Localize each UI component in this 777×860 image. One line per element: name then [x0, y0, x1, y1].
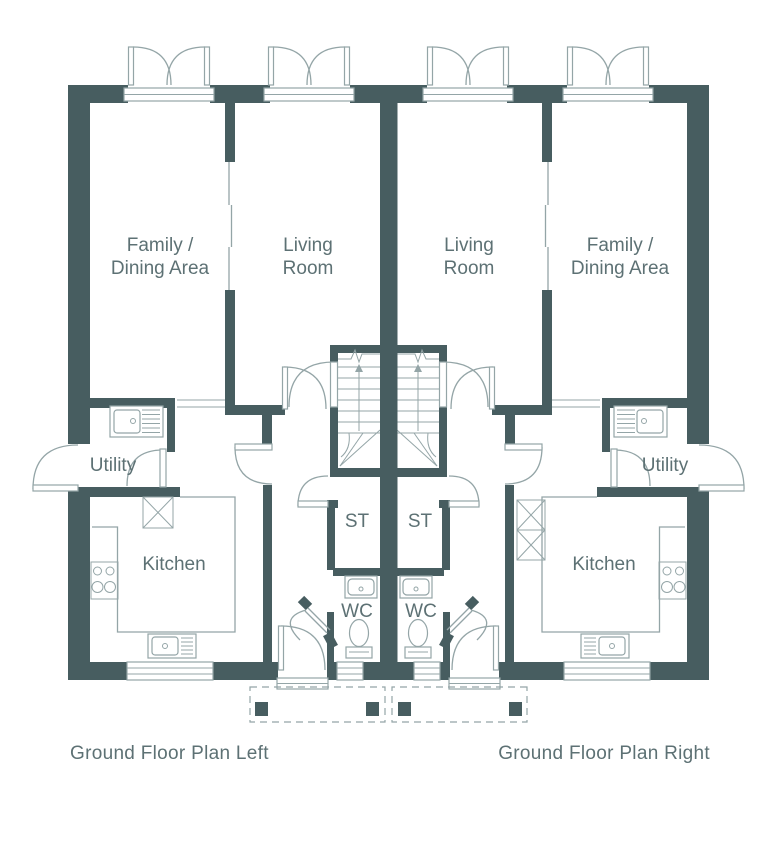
plan-left-unit [33, 47, 389, 722]
room-label-family-dining-left: Dining Area [111, 258, 210, 279]
utility-external-door [33, 445, 78, 491]
room-label-wc-left: WC [341, 601, 373, 622]
room-label-family-dining-right: Dining Area [571, 258, 670, 279]
plan-right-unit [388, 47, 744, 722]
floor-plan-drawing: Family / Dining Area Living Room Living … [0, 0, 777, 860]
glazed-partition [229, 162, 232, 290]
staircase [338, 350, 380, 466]
floor-plan-page: Family / Dining Area Living Room Living … [0, 0, 777, 860]
french-doors-family [124, 47, 214, 101]
porch-post [255, 702, 268, 716]
room-label-living-right: Room [444, 258, 495, 279]
caption-ground-floor-plan-left: Ground Floor Plan Left [70, 743, 269, 764]
room-label-family-dining-left: Family / [127, 235, 194, 256]
room-label-family-dining-right: Family / [587, 235, 654, 256]
room-label-utility-left: Utility [90, 455, 137, 476]
passage-threshold [177, 400, 225, 407]
cupboard-right-unit [517, 500, 545, 560]
porch-post [366, 702, 379, 716]
hob [92, 567, 116, 593]
wc-door [290, 608, 330, 640]
room-label-wc-right: WC [405, 601, 437, 622]
room-label-kitchen-left: Kitchen [142, 554, 205, 575]
cupboard-left-unit [143, 497, 173, 528]
porch-outline [250, 687, 385, 722]
toilet [346, 620, 372, 659]
stair-hall-door [289, 362, 338, 407]
wc-door-jamb [301, 599, 309, 607]
front-door [277, 626, 328, 689]
room-label-living-right: Living [444, 235, 494, 256]
wc-window [337, 662, 363, 680]
room-label-living-left: Living [283, 235, 333, 256]
kitchen-window [127, 662, 213, 680]
wc-door-jamb [327, 634, 334, 647]
utility-sink [110, 406, 163, 437]
party-wall [380, 85, 398, 680]
kitchen-sink [148, 634, 196, 658]
kitchen-door [235, 444, 272, 484]
room-label-kitchen-right: Kitchen [572, 554, 635, 575]
room-label-utility-right: Utility [642, 455, 689, 476]
room-label-storage-left: ST [345, 511, 370, 532]
wash-basin [345, 576, 377, 598]
storage-door [298, 476, 328, 507]
room-label-storage-right: ST [408, 511, 433, 532]
french-doors-living [264, 47, 354, 101]
caption-ground-floor-plan-right: Ground Floor Plan Right [498, 743, 710, 764]
room-label-living-left: Room [283, 258, 334, 279]
